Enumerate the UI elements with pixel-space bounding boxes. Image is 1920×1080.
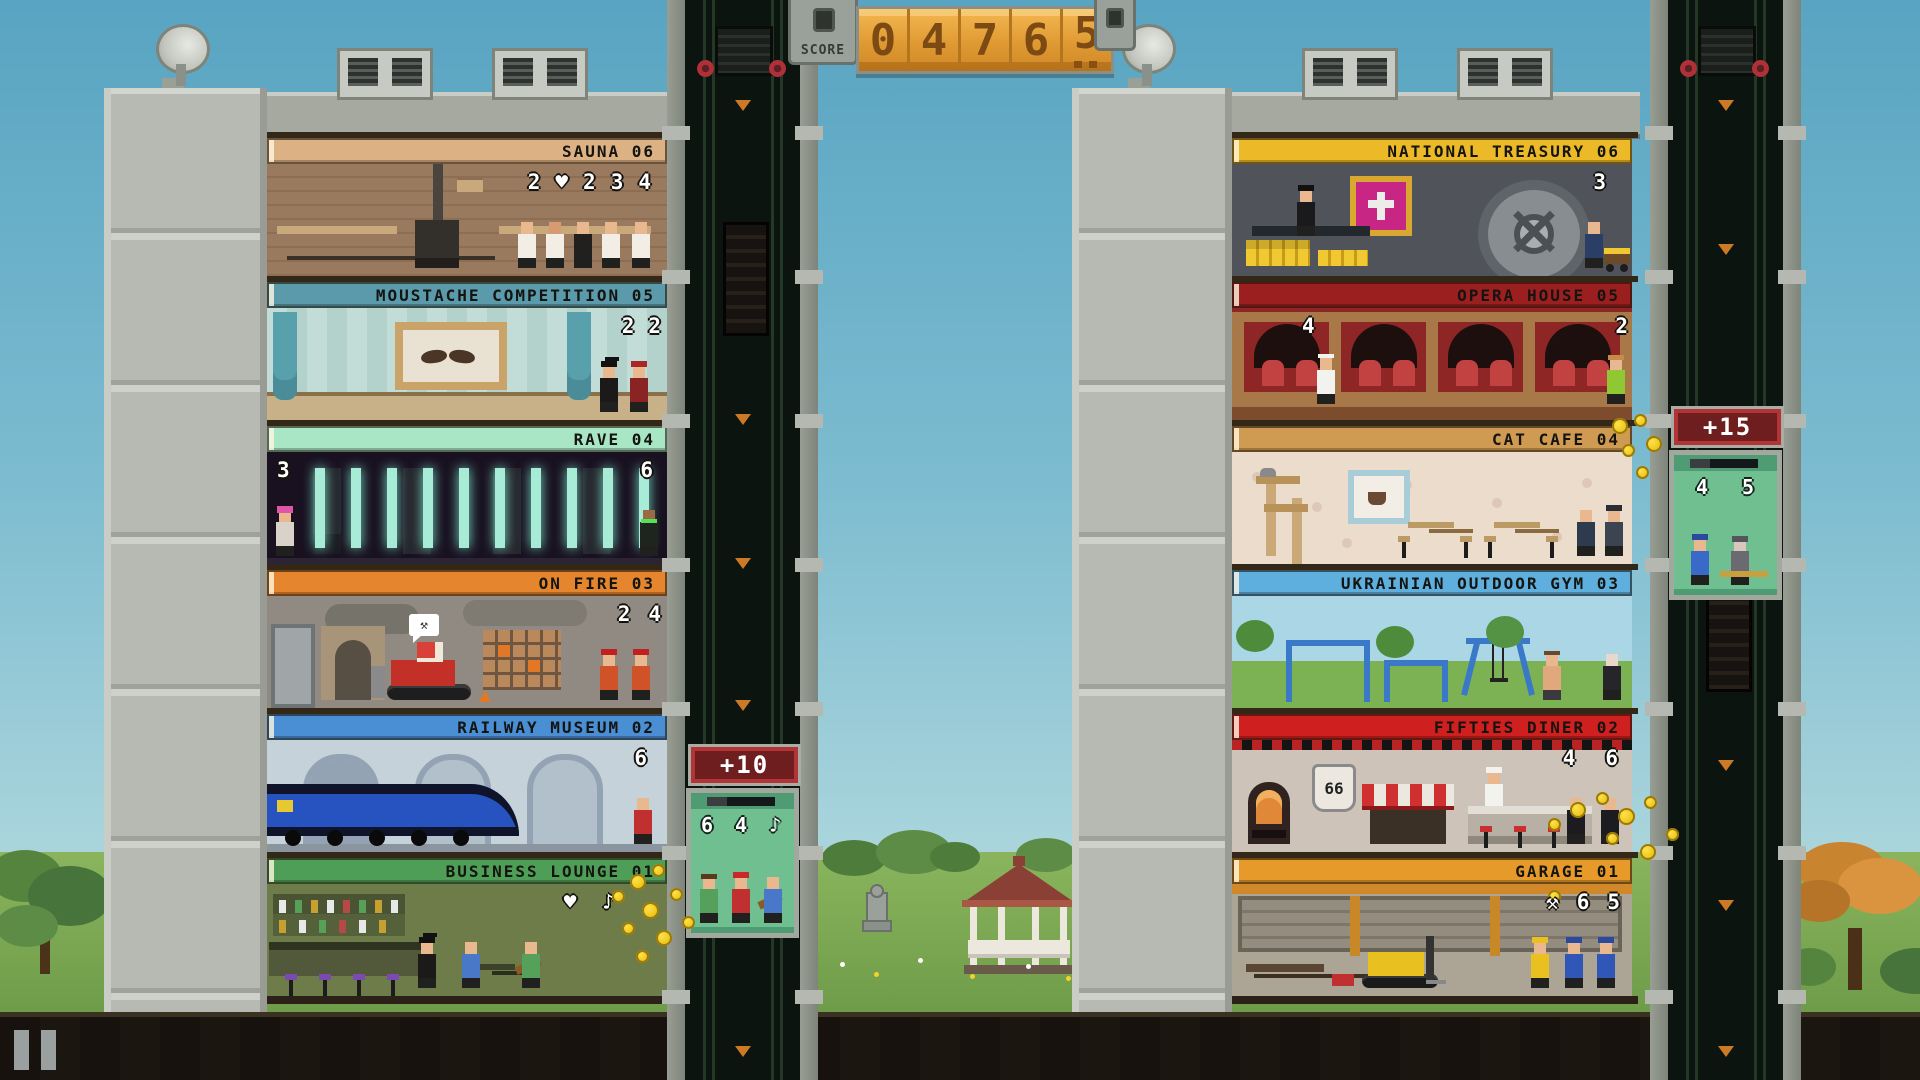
balcony-rail <box>1232 392 1632 412</box>
floor-title: SAUNA 06 <box>267 138 667 164</box>
score-digit: 7 <box>961 9 1012 71</box>
floor-cat-cafe: CAT CAFE 04 <box>1232 420 1632 564</box>
jukebox <box>1248 782 1290 844</box>
traffic-cone <box>479 690 491 702</box>
on-fire-room: ⚒ 24 <box>267 596 667 708</box>
cafe-table <box>1408 522 1454 528</box>
tree <box>1236 620 1274 652</box>
locomotive <box>267 784 521 844</box>
passenger <box>1690 539 1710 585</box>
moustache-room: 22 <box>267 308 667 420</box>
destination-indicator: 2 <box>648 314 661 338</box>
destination-indicator: ♥ <box>555 170 568 194</box>
destination-indicator: 6 <box>1605 746 1618 770</box>
destination-indicator: 4 <box>638 170 651 194</box>
person <box>1584 222 1604 268</box>
bar-counter <box>269 942 421 976</box>
floor-business-lounge: BUSINESS LOUNGE 01 ♥♪ <box>267 852 667 996</box>
floor-title: RAILWAY MUSEUM 02 <box>267 714 667 740</box>
wall-vent <box>457 176 483 192</box>
hoist-machinery <box>1698 26 1756 76</box>
floor-title: FIFTIES DINER 02 <box>1232 714 1632 740</box>
diner-stool <box>1480 826 1492 848</box>
bar-shelves <box>273 894 405 936</box>
treasury-room: 3 <box>1232 164 1632 276</box>
forklift <box>1362 936 1442 988</box>
stove <box>415 220 459 268</box>
passenger-destination: 5 <box>1742 475 1754 499</box>
floor-title: MOUSTACHE COMPETITION 05 <box>267 282 667 308</box>
worker <box>1564 942 1584 988</box>
tree-trunk <box>1848 928 1862 990</box>
floor-national-treasury: NATIONAL TREASURY 06 <box>1232 132 1632 276</box>
bar-stool <box>353 974 365 996</box>
banker <box>1296 190 1316 236</box>
destination-indicator: ♥ <box>564 890 577 914</box>
person <box>633 798 653 844</box>
down-arrow-icon <box>735 1046 751 1057</box>
opera-room: 4 2 <box>1232 308 1632 420</box>
shaft-frame <box>1650 0 1668 1080</box>
right-tower-column <box>1072 88 1232 1012</box>
person <box>1604 510 1624 556</box>
autumn-tree <box>1838 858 1920 914</box>
ac-unit <box>492 48 588 100</box>
cat-cafe-room <box>1232 452 1632 564</box>
person <box>545 222 565 268</box>
stove-pipe <box>433 164 443 220</box>
score-hanger: SCORE <box>788 0 858 65</box>
cafe-stool <box>1398 536 1410 558</box>
satellite-dish-icon <box>150 24 220 90</box>
floor-moustache-competition: MOUSTACHE COMPETITION 05 22 <box>267 276 667 420</box>
statue <box>866 892 888 924</box>
flowers <box>840 962 845 967</box>
hanger-hole <box>813 8 835 32</box>
pause-button[interactable] <box>14 1030 62 1070</box>
firefighter <box>631 654 651 700</box>
left-tower-floors: SAUNA 06 2♥234 MOUSTACHE COMPETITION 05 <box>267 132 667 1004</box>
coins <box>1608 414 1698 504</box>
floor-title: UKRAINIAN OUTDOOR GYM 03 <box>1232 570 1632 596</box>
destination-indicator: 3 <box>277 458 290 482</box>
railway-museum-room: 6 <box>267 740 667 852</box>
score-label: SCORE <box>791 43 855 58</box>
bar-stool <box>387 974 399 996</box>
passenger-destination: 4 <box>735 813 747 837</box>
rave-room: 3 6 <box>267 452 667 564</box>
door-post <box>1350 896 1360 956</box>
destination-indicator: 6 <box>634 746 647 770</box>
down-arrow-icon <box>1718 900 1734 911</box>
business-lounge-room: ♥♪ <box>267 884 667 996</box>
opera-seat <box>1262 360 1284 386</box>
cafe-stool <box>1484 536 1496 558</box>
passenger <box>763 877 783 923</box>
coffee-picture <box>1348 470 1410 524</box>
score-digit: 4 <box>910 9 961 71</box>
destination-indicator: 4 <box>648 602 661 626</box>
person <box>1606 358 1626 404</box>
score-panel: SCORE 04765 <box>784 0 1136 96</box>
coins <box>1548 788 1688 878</box>
pullup-bar <box>1286 640 1370 702</box>
person <box>629 366 649 412</box>
floor-title: ON FIRE 03 <box>267 570 667 596</box>
down-arrow-icon <box>1718 1046 1734 1057</box>
speech-bubble: ⚒ <box>409 614 439 636</box>
destination-indicator: 5 <box>1607 890 1620 914</box>
person <box>517 222 537 268</box>
toolbox <box>1332 974 1354 986</box>
floor-opera-house: OPERA HOUSE 05 4 2 <box>1232 276 1632 420</box>
game-screen: SAUNA 06 2♥234 MOUSTACHE COMPETITION 05 <box>0 0 1920 1080</box>
sauna-room: 2♥234 <box>267 164 667 276</box>
shaft-frame <box>1783 0 1801 1080</box>
passenger-destination: 6 <box>701 813 713 837</box>
cafe-stool <box>1546 536 1558 558</box>
person <box>1576 510 1596 556</box>
parallel-bars <box>1384 660 1448 702</box>
score-digit: 0 <box>859 9 910 71</box>
bulldozer <box>371 640 467 702</box>
score-digit: 6 <box>1012 9 1063 71</box>
pulley-wheel-icon <box>1680 60 1697 77</box>
bodybuilder <box>1542 654 1562 700</box>
down-arrow-icon <box>1718 244 1734 255</box>
person <box>639 510 659 556</box>
curtain <box>273 312 297 400</box>
passenger <box>1730 539 1750 585</box>
right-elevator-shaft: +15 45 <box>1650 0 1801 1080</box>
balcony-beam <box>1232 312 1632 322</box>
down-arrow-icon <box>1718 760 1734 771</box>
pulley-wheel-icon <box>697 60 714 77</box>
floor-title: CAT CAFE 04 <box>1232 426 1632 452</box>
floor-outdoor-gym: UKRAINIAN OUTDOOR GYM 03 <box>1232 564 1632 708</box>
cafe-stool <box>1460 536 1472 558</box>
guitar-player <box>521 942 541 988</box>
destination-indicator: 6 <box>1577 890 1590 914</box>
firefighter <box>599 654 619 700</box>
down-arrow-icon <box>735 414 751 425</box>
person <box>573 222 593 268</box>
bar-stool <box>319 974 331 996</box>
worker <box>1596 942 1616 988</box>
person <box>599 366 619 412</box>
person <box>1602 654 1622 700</box>
destination-indicator: 6 <box>640 458 653 482</box>
moustache-portrait <box>395 322 507 390</box>
coins <box>612 862 742 972</box>
destination-indicator: 2 <box>1615 314 1628 338</box>
destination-indicator: 2 <box>618 602 631 626</box>
destination-indicator: 4 <box>1563 746 1576 770</box>
down-arrow-icon <box>1718 100 1734 111</box>
floor-title: OPERA HOUSE 05 <box>1232 282 1632 308</box>
awning <box>1362 784 1454 810</box>
gazebo <box>960 856 1078 982</box>
cafe-table <box>1494 522 1540 528</box>
person <box>631 222 651 268</box>
smoke <box>463 600 587 626</box>
down-arrow-icon <box>735 558 751 569</box>
floor-title: NATIONAL TREASURY 06 <box>1232 138 1632 164</box>
vault-door <box>1478 180 1590 276</box>
ac-unit <box>1457 48 1553 100</box>
destination-indicator: 2 <box>622 314 635 338</box>
score-hanger <box>1094 0 1136 51</box>
destination-indicator: 4 <box>1302 314 1315 338</box>
burnt-window-grid <box>483 630 561 690</box>
sauna-bench <box>277 226 397 234</box>
floor-sauna: SAUNA 06 2♥234 <box>267 132 667 276</box>
counterweight <box>723 222 769 336</box>
gold-pile <box>1246 240 1310 266</box>
gold-pile <box>1318 250 1368 266</box>
destination-indicator: 2 <box>583 170 596 194</box>
person <box>417 942 437 988</box>
down-arrow-icon <box>735 700 751 711</box>
gold-cart <box>1604 248 1630 264</box>
pulley-wheel-icon <box>1752 60 1769 77</box>
cab-bench <box>1720 571 1768 577</box>
destination-indicator: 2 <box>528 170 541 194</box>
diner-stool <box>1514 826 1526 848</box>
floor-railway-museum: RAILWAY MUSEUM 02 6 <box>267 708 667 852</box>
workbench <box>1246 964 1324 972</box>
destination-indicator: 3 <box>611 170 624 194</box>
street-level <box>0 1012 1920 1080</box>
mechanic <box>1530 942 1550 988</box>
floor-on-fire: ON FIRE 03 ⚒ <box>267 564 667 708</box>
ac-unit <box>337 48 433 100</box>
person <box>275 510 295 556</box>
diner-window <box>1370 810 1446 844</box>
curtain <box>567 312 591 400</box>
down-arrow-icon <box>735 100 751 111</box>
hoist-machinery <box>715 26 773 76</box>
destination-indicator: 3 <box>1593 170 1606 194</box>
passenger-destination: ♪ <box>769 813 781 837</box>
score-counter: 04765 <box>856 6 1114 74</box>
usher <box>1316 358 1336 404</box>
light-bars <box>289 468 649 548</box>
swing-set <box>1466 638 1530 698</box>
destination-indicator: ⚒ <box>1546 890 1559 914</box>
floor-title: RAVE 04 <box>267 426 667 452</box>
floor-title: BUSINESS LOUNGE 01 <box>267 858 667 884</box>
cat-tree <box>1256 476 1316 556</box>
outdoor-gym-room <box>1232 596 1632 708</box>
garage-room: ⚒65 <box>1232 884 1632 996</box>
elevator-door <box>271 624 315 708</box>
person <box>601 222 621 268</box>
route-66-sign: 66 <box>1312 764 1356 812</box>
bonus-banner: +10 <box>688 744 801 786</box>
bar-stool <box>285 974 297 996</box>
left-tower-column <box>104 88 267 1012</box>
floor-rave: RAVE 04 3 6 <box>267 420 667 564</box>
arch-window <box>527 754 603 850</box>
person <box>461 942 481 988</box>
ac-unit <box>1302 48 1398 100</box>
shaft-frame <box>800 0 818 1080</box>
